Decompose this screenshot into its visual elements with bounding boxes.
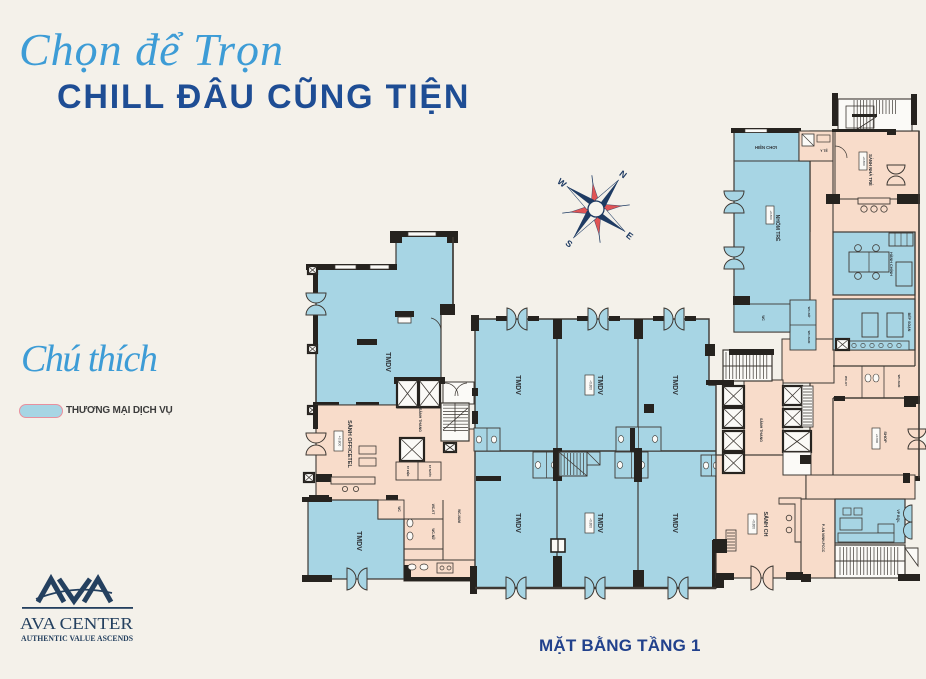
svg-text:SHOP: SHOP	[883, 431, 888, 443]
svg-text:+0.800: +0.800	[862, 156, 866, 166]
svg-text:SẢNH OFFICETEL: SẢNH OFFICETEL	[346, 420, 353, 468]
svg-text:+0.800: +0.800	[752, 519, 756, 529]
svg-text:WC-NỮ: WC-NỮ	[431, 528, 436, 540]
svg-text:WC-NAM: WC-NAM	[457, 509, 461, 523]
svg-text:E: E	[624, 230, 635, 242]
svg-text:TMDV: TMDV	[671, 513, 678, 533]
svg-text:WC-NỮ: WC-NỮ	[807, 307, 812, 318]
svg-text:NHÓM TRẺ: NHÓM TRẺ	[774, 215, 782, 242]
svg-text:HÀNH CHÍNH: HÀNH CHÍNH	[889, 252, 894, 276]
svg-text:N: N	[617, 168, 628, 180]
svg-text:WC: WC	[761, 315, 765, 321]
svg-text:TMDV: TMDV	[355, 531, 362, 551]
svg-text:WC-KT: WC-KT	[431, 504, 435, 515]
svg-text:Y TẾ: Y TẾ	[820, 148, 828, 153]
svg-text:TMDV: TMDV	[384, 352, 391, 372]
svg-text:TMDV: TMDV	[671, 375, 678, 395]
svg-text:WC-KT: WC-KT	[844, 376, 848, 386]
svg-text:TMDV: TMDV	[596, 375, 603, 395]
svg-text:SẢNH THANG: SẢNH THANG	[418, 408, 423, 432]
svg-text:W: W	[555, 176, 568, 189]
svg-text:TMDV: TMDV	[514, 375, 521, 395]
svg-text:+0.800: +0.800	[769, 210, 773, 220]
svg-text:S: S	[563, 238, 574, 250]
svg-text:P. AN NINH-PCCC: P. AN NINH-PCCC	[821, 524, 825, 553]
svg-text:TMDV: TMDV	[596, 513, 603, 533]
svg-text:+0.800: +0.800	[338, 436, 342, 447]
svg-text:TMDV: TMDV	[514, 513, 521, 533]
svg-text:SẢNH NHÀ TRẺ: SẢNH NHÀ TRẺ	[868, 154, 873, 186]
svg-text:+0.800: +0.800	[589, 518, 593, 528]
svg-text:BẾP SOẠN: BẾP SOẠN	[907, 313, 912, 332]
svg-text:HIÊN CHƠI: HIÊN CHƠI	[755, 145, 777, 150]
svg-text:WC-NAM: WC-NAM	[897, 375, 901, 388]
svg-text:SẢNH THANG: SẢNH THANG	[759, 418, 764, 442]
svg-text:WC-NAM: WC-NAM	[807, 331, 811, 344]
svg-text:+0.800: +0.800	[875, 434, 879, 444]
svg-text:SẢNH CH: SẢNH CH	[762, 511, 769, 536]
svg-text:WC: WC	[397, 506, 401, 512]
svg-text:VP BQL: VP BQL	[896, 509, 900, 523]
svg-text:+0.800: +0.800	[589, 380, 593, 390]
